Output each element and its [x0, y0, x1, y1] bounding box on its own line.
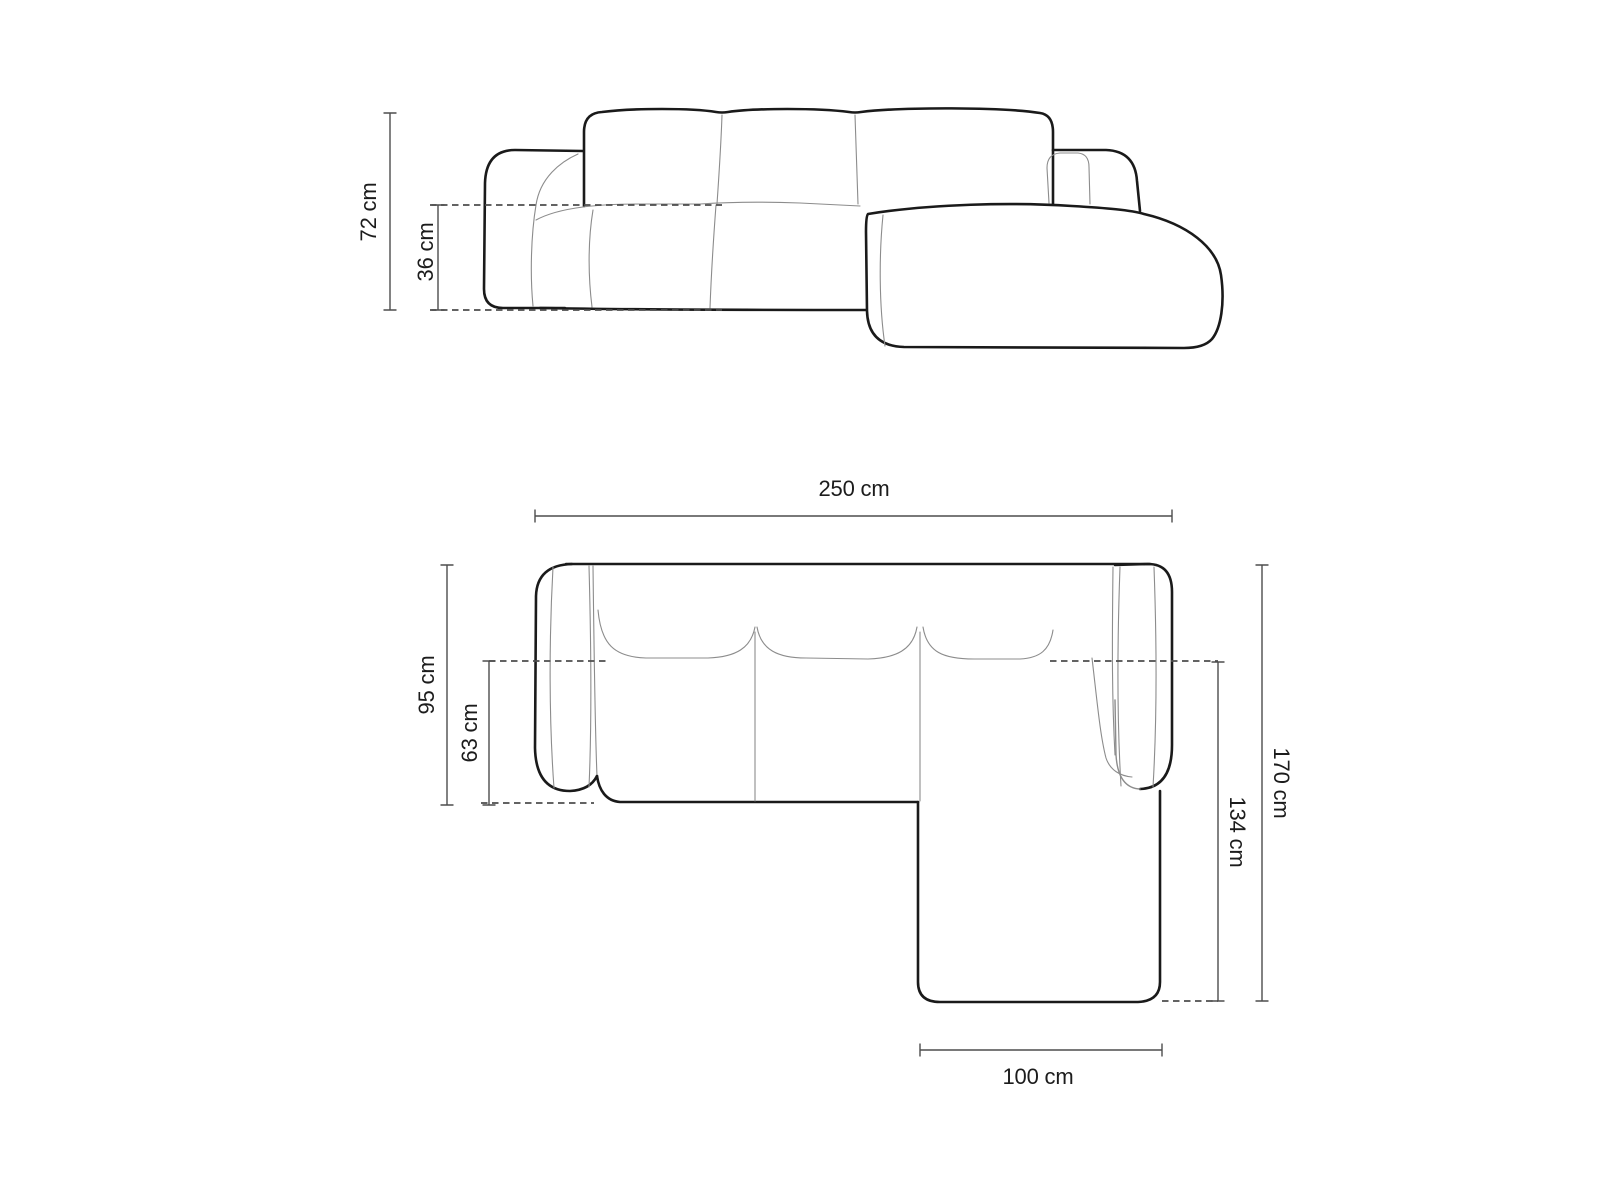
- top-view: [441, 510, 1269, 1057]
- front-height-total-label: 72 cm: [356, 183, 382, 242]
- front-seat-left-seam: [589, 210, 593, 307]
- top-width-total-label: 250 cm: [819, 476, 890, 502]
- top-seat-front-edge: [597, 776, 918, 802]
- top-dimension-lines: [441, 510, 1269, 1057]
- top-right-armrest-inner-curl-seam: [1092, 658, 1132, 777]
- top-depth-body-label: 95 cm: [414, 656, 440, 715]
- top-depth-total-line: [1256, 565, 1269, 1001]
- top-width-total-line: [535, 510, 1172, 523]
- top-cushion-2-front-seam: [757, 627, 917, 659]
- top-right-armrest-inner-edge: [1112, 567, 1115, 755]
- top-length-chaise-line: [1212, 662, 1225, 1001]
- top-depth-total-label: 170 cm: [1268, 748, 1294, 819]
- dimension-diagram-canvas: 72 cm 36 cm 250 cm 95 cm 63 cm 170 cm 13…: [0, 0, 1600, 1200]
- front-height-total-line: [384, 113, 397, 310]
- front-seat-divider-seam: [710, 205, 716, 308]
- front-left-armrest-inner-seam: [531, 154, 578, 306]
- top-depth-body-line: [441, 565, 454, 805]
- front-right-armrest-outline: [1053, 150, 1140, 211]
- top-left-armrest-outline: [535, 564, 597, 791]
- sofa-dimension-drawing: [0, 0, 1600, 1200]
- top-right-armrest-seam-2: [1153, 567, 1156, 787]
- front-back-cushions-outline: [584, 108, 1053, 206]
- top-right-armrest-seam-1: [1118, 567, 1121, 786]
- top-left-armrest-inner-edge: [593, 566, 597, 776]
- top-depth-seat-line: [483, 661, 496, 805]
- front-view: [384, 108, 1223, 348]
- front-back-seam-2: [855, 115, 858, 204]
- top-width-chaise-label: 100 cm: [1003, 1064, 1074, 1090]
- top-depth-seat-label: 63 cm: [457, 704, 483, 763]
- top-left-armrest-seam-1: [550, 567, 554, 788]
- top-chaise-outline: [918, 791, 1160, 1002]
- front-chaise-outline: [866, 204, 1223, 348]
- top-length-chaise-label: 134 cm: [1224, 797, 1250, 868]
- front-back-seam-1: [717, 115, 722, 204]
- top-width-chaise-line: [920, 1044, 1162, 1057]
- top-right-armrest-outline: [1115, 564, 1172, 789]
- top-cushion-1-front-seam: [598, 610, 755, 658]
- top-cushion-3-front-seam: [923, 627, 1053, 659]
- top-left-armrest-seam-2: [589, 566, 591, 787]
- front-height-seat-label: 36 cm: [413, 223, 439, 282]
